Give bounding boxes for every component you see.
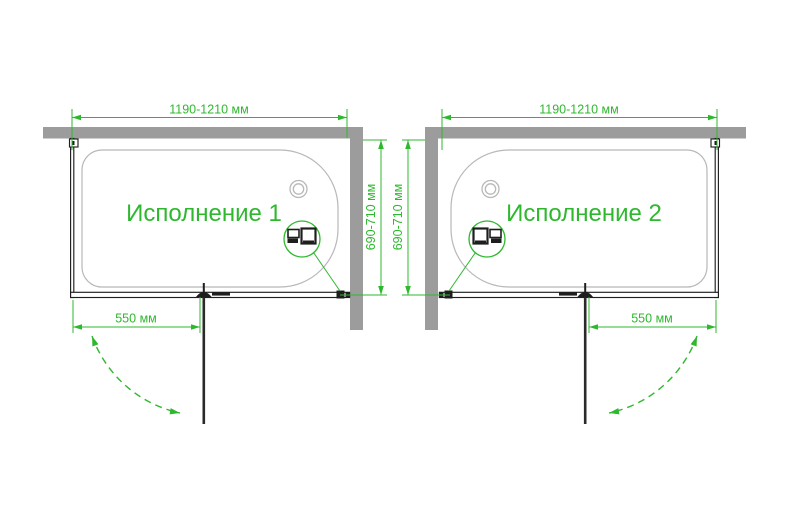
door-swing-arc [92, 336, 180, 413]
diagram-title: Исполнение 2 [506, 200, 662, 227]
profile-part-a-base [288, 239, 299, 244]
dim-width: 1190-1210 мм [72, 103, 347, 151]
profile-part-b-base [303, 241, 314, 244]
detail-leader-line [449, 253, 476, 292]
drain-inner-circle [485, 184, 495, 194]
door-swing-arc [609, 336, 697, 413]
dim-arrow [405, 286, 411, 295]
dim-depth-label: 690-710 мм [391, 184, 405, 251]
dim-width: 1190-1210 мм [442, 103, 717, 151]
dim-arrow [191, 324, 200, 330]
magnet-profile-strip [559, 292, 577, 296]
profile-part-b-base [475, 241, 486, 244]
dim-width-label: 1190-1210 мм [539, 103, 619, 117]
profile-section-glyph [474, 229, 502, 244]
dim-width-label: 1190-1210 мм [169, 103, 249, 117]
profile-section-glyph [288, 229, 316, 244]
dim-arrow [338, 115, 347, 121]
wall-side-left [425, 127, 438, 330]
side-glass-panel [71, 139, 74, 298]
diagram-version-1: 1190-1210 мм 690-710 мм 550 мм Исполнени… [43, 103, 387, 425]
drain-inner-circle [293, 184, 303, 194]
dim-arrow [73, 324, 82, 330]
profile-part-a [490, 230, 501, 238]
diagram-title: Исполнение 1 [126, 200, 282, 227]
profile-part-a-base [491, 239, 502, 244]
dim-door-label: 550 мм [115, 312, 157, 326]
wall-side-right [350, 127, 363, 330]
dim-arrow [378, 140, 384, 149]
dim-door: 550 мм [589, 297, 716, 333]
detail-leader-line [314, 253, 341, 292]
dim-depth: 690-710 мм [391, 140, 450, 295]
dim-arrow [708, 115, 717, 121]
bath-screen-drawing: 1190-1210 мм 690-710 мм 550 мм Исполнени… [0, 0, 790, 526]
diagram-version-2: 1190-1210 мм 690-710 мм 550 мм Исполнени… [391, 103, 746, 425]
dim-door-label: 550 мм [631, 312, 673, 326]
dim-depth: 690-710 мм [340, 140, 387, 295]
wall-top [425, 127, 746, 139]
dim-depth-label: 690-710 мм [364, 184, 378, 251]
wall-top [43, 127, 363, 139]
dim-door: 550 мм [73, 297, 200, 333]
technical-drawing-canvas: 1190-1210 мм 690-710 мм 550 мм Исполнени… [0, 0, 790, 526]
magnet-profile-strip [212, 292, 230, 296]
dim-arrow [72, 115, 81, 121]
side-glass-panel [715, 139, 718, 298]
dim-arrow [589, 324, 598, 330]
dim-arrow [405, 140, 411, 149]
dim-arrow [378, 286, 384, 295]
drain-outer-circle [290, 181, 307, 198]
drain-outer-circle [482, 181, 499, 198]
swing-arrow [691, 335, 700, 347]
profile-part-a [288, 230, 299, 238]
dim-arrow [707, 324, 716, 330]
swing-arrow [89, 335, 98, 347]
dim-arrow [442, 115, 451, 121]
